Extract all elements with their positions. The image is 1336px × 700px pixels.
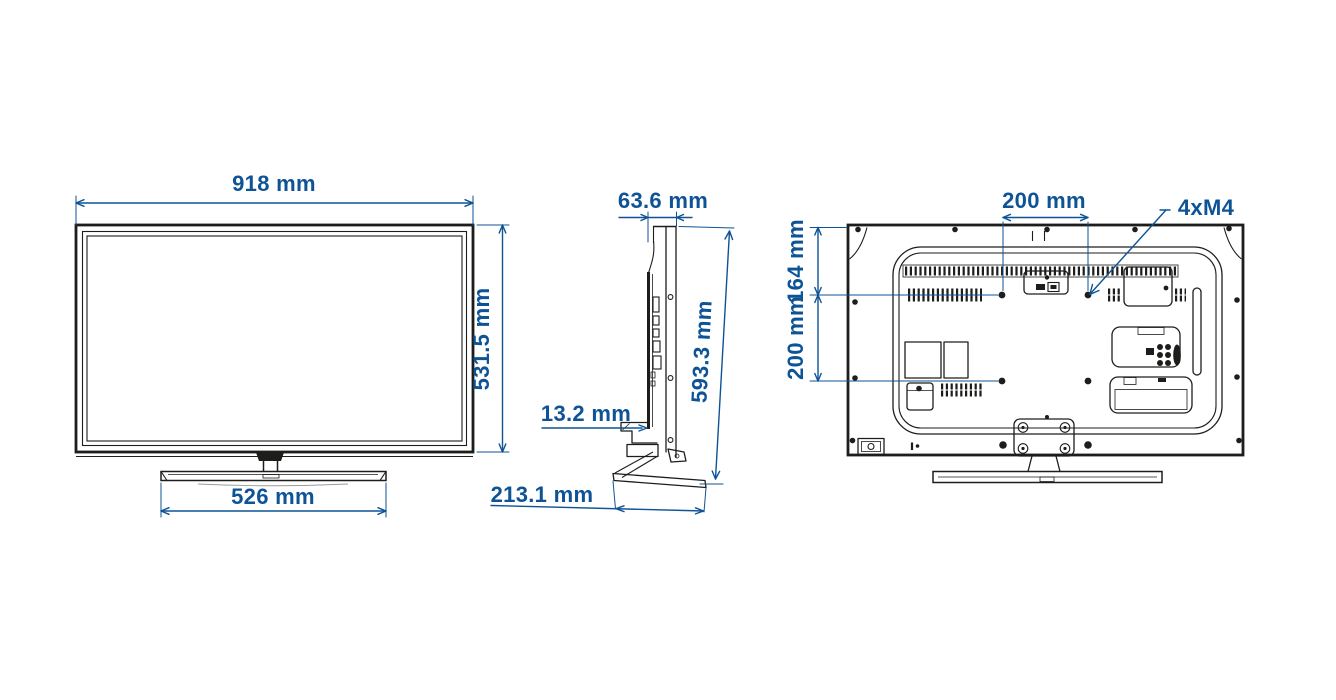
side-bottom-gap-dimension: 13.2 mm	[541, 401, 647, 431]
side-depth-label: 63.6 mm	[618, 188, 708, 213]
side-view: 63.6 mm 593.3 mm 13.2 mm 213.1 mm	[491, 188, 734, 514]
side-stand	[613, 423, 706, 488]
rear-stand	[933, 456, 1162, 483]
tv-dimension-diagram: 918 mm 531.5 mm 526 mm	[0, 0, 1336, 700]
front-stand-width-dimension: 526 mm	[161, 483, 386, 517]
front-width-label: 918 mm	[232, 171, 316, 196]
rear-view: 200 mm 4xM4 164 mm 200 mm	[783, 188, 1243, 483]
front-stand-width-label: 526 mm	[231, 484, 315, 509]
front-height-dimension: 531.5 mm	[469, 225, 509, 452]
vesa-height-label: 200 mm	[783, 296, 808, 380]
side-height-label: 593.3 mm	[686, 300, 716, 404]
front-stand	[161, 453, 386, 486]
side-stand-depth-dimension: 213.1 mm	[491, 481, 706, 514]
side-height-dimension: 593.3 mm	[679, 227, 734, 485]
vesa-width-label: 200 mm	[1002, 188, 1086, 213]
vesa-offset-label: 164 mm	[783, 219, 808, 303]
side-stand-depth-label: 213.1 mm	[491, 482, 594, 507]
front-width-dimension: 918 mm	[76, 171, 473, 225]
vesa-screw-label: 4xM4	[1178, 195, 1235, 220]
front-view: 918 mm 531.5 mm 526 mm	[76, 171, 509, 517]
side-bottom-gap-label: 13.2 mm	[541, 401, 631, 426]
front-height-label: 531.5 mm	[469, 288, 494, 391]
side-depth-dimension: 63.6 mm	[618, 188, 708, 242]
